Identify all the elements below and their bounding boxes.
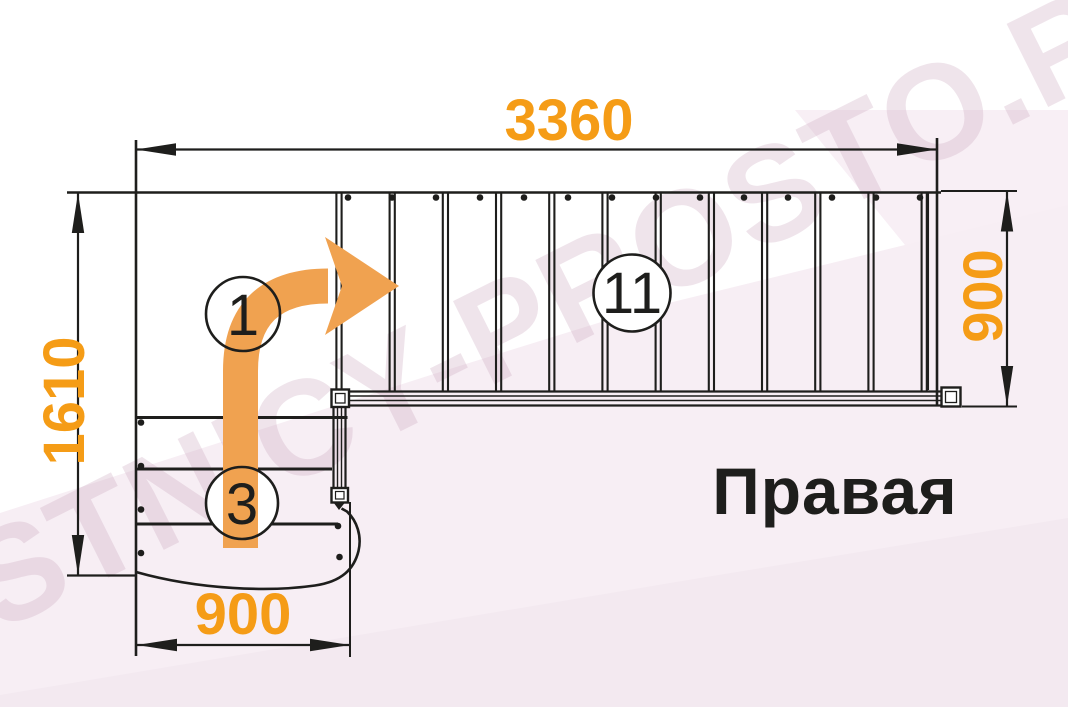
dim-right-label: 900 xyxy=(951,249,1014,342)
orientation-label: Правая xyxy=(712,454,957,528)
stair-plan-page: LESTNICY-PROSTO.RU xyxy=(0,0,1068,707)
marker-label-11: 11 xyxy=(602,261,662,326)
stringer-end-block xyxy=(942,388,961,407)
marker-label-3: 3 xyxy=(226,472,258,537)
dim-left-label: 1610 xyxy=(32,336,97,465)
dim-bottom-label: 900 xyxy=(195,582,292,647)
marker-label-1: 1 xyxy=(227,283,259,348)
stair-plan-drawing: LESTNICY-PROSTO.RU xyxy=(0,0,1068,707)
newel-post-bottom xyxy=(332,488,349,503)
newel-post-top xyxy=(332,390,350,408)
dim-top-label: 3360 xyxy=(504,88,633,153)
